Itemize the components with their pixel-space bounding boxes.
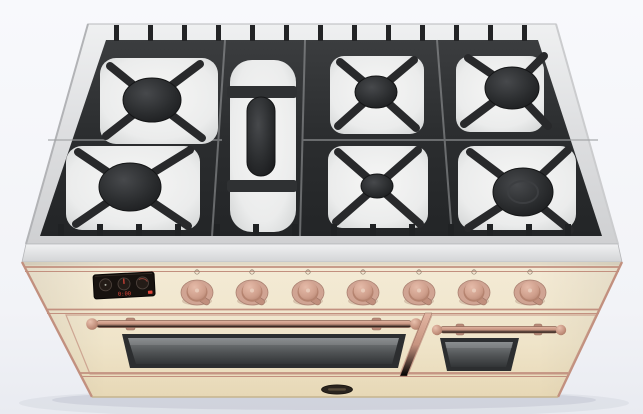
front-panel: 0:00 [22,262,622,397]
burner-cap-rear-right [485,67,539,109]
burner-cap-center-oval [247,97,275,176]
cooktop-front-lip [22,244,622,262]
side-oven-window [440,338,519,371]
display-indicator-light [148,291,153,294]
range-cooker-render: 0:00 [0,0,643,414]
burner-cap-front-center [361,174,393,198]
burner-cap-rear-center [355,76,397,108]
burner-cap-front-right [493,168,553,216]
burner-cap-rear-left [123,78,181,122]
product-image: 0:00 [0,0,643,414]
oval-grate-bar-bottom [227,180,297,192]
burner-cap-front-left [99,163,161,211]
oval-grate-bar-top [227,86,297,98]
brand-badge [322,385,353,394]
oven-display: 0:00 [93,272,155,299]
display-time: 0:00 [118,291,132,298]
cooktop [22,24,622,262]
main-oven-window [122,334,406,368]
